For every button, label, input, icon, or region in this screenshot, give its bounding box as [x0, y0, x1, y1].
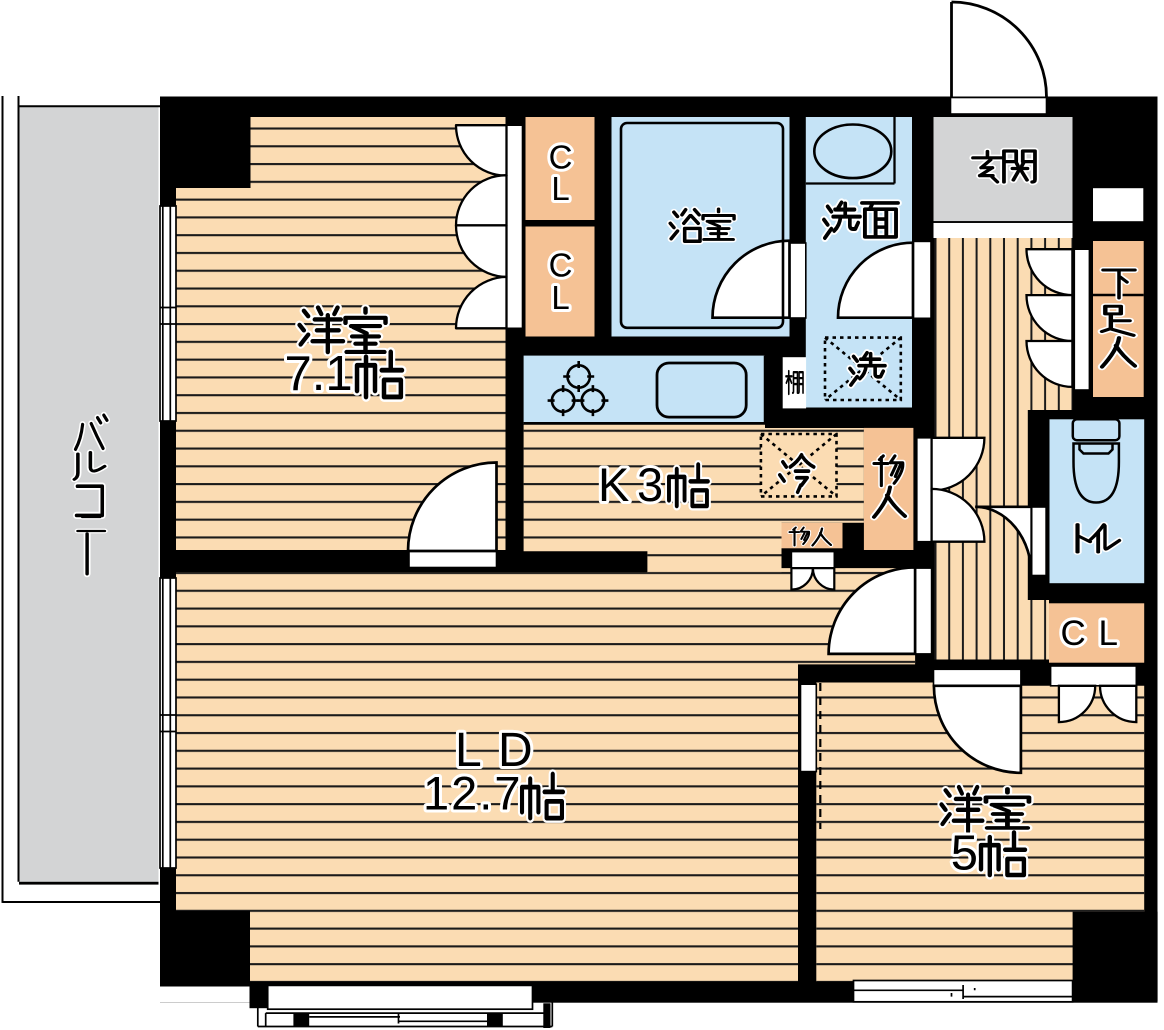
svg-text:12.7: 12.7 [423, 767, 522, 820]
svg-text:L: L [551, 170, 569, 207]
svg-text:C: C [549, 247, 573, 284]
svg-text:3: 3 [637, 458, 663, 511]
svg-text:7.1: 7.1 [285, 347, 353, 401]
svg-text:K: K [598, 458, 629, 511]
svg-text:5: 5 [951, 827, 978, 881]
svg-text:L: L [1099, 614, 1118, 653]
svg-text:L: L [551, 279, 569, 316]
svg-text:C: C [1061, 614, 1086, 653]
